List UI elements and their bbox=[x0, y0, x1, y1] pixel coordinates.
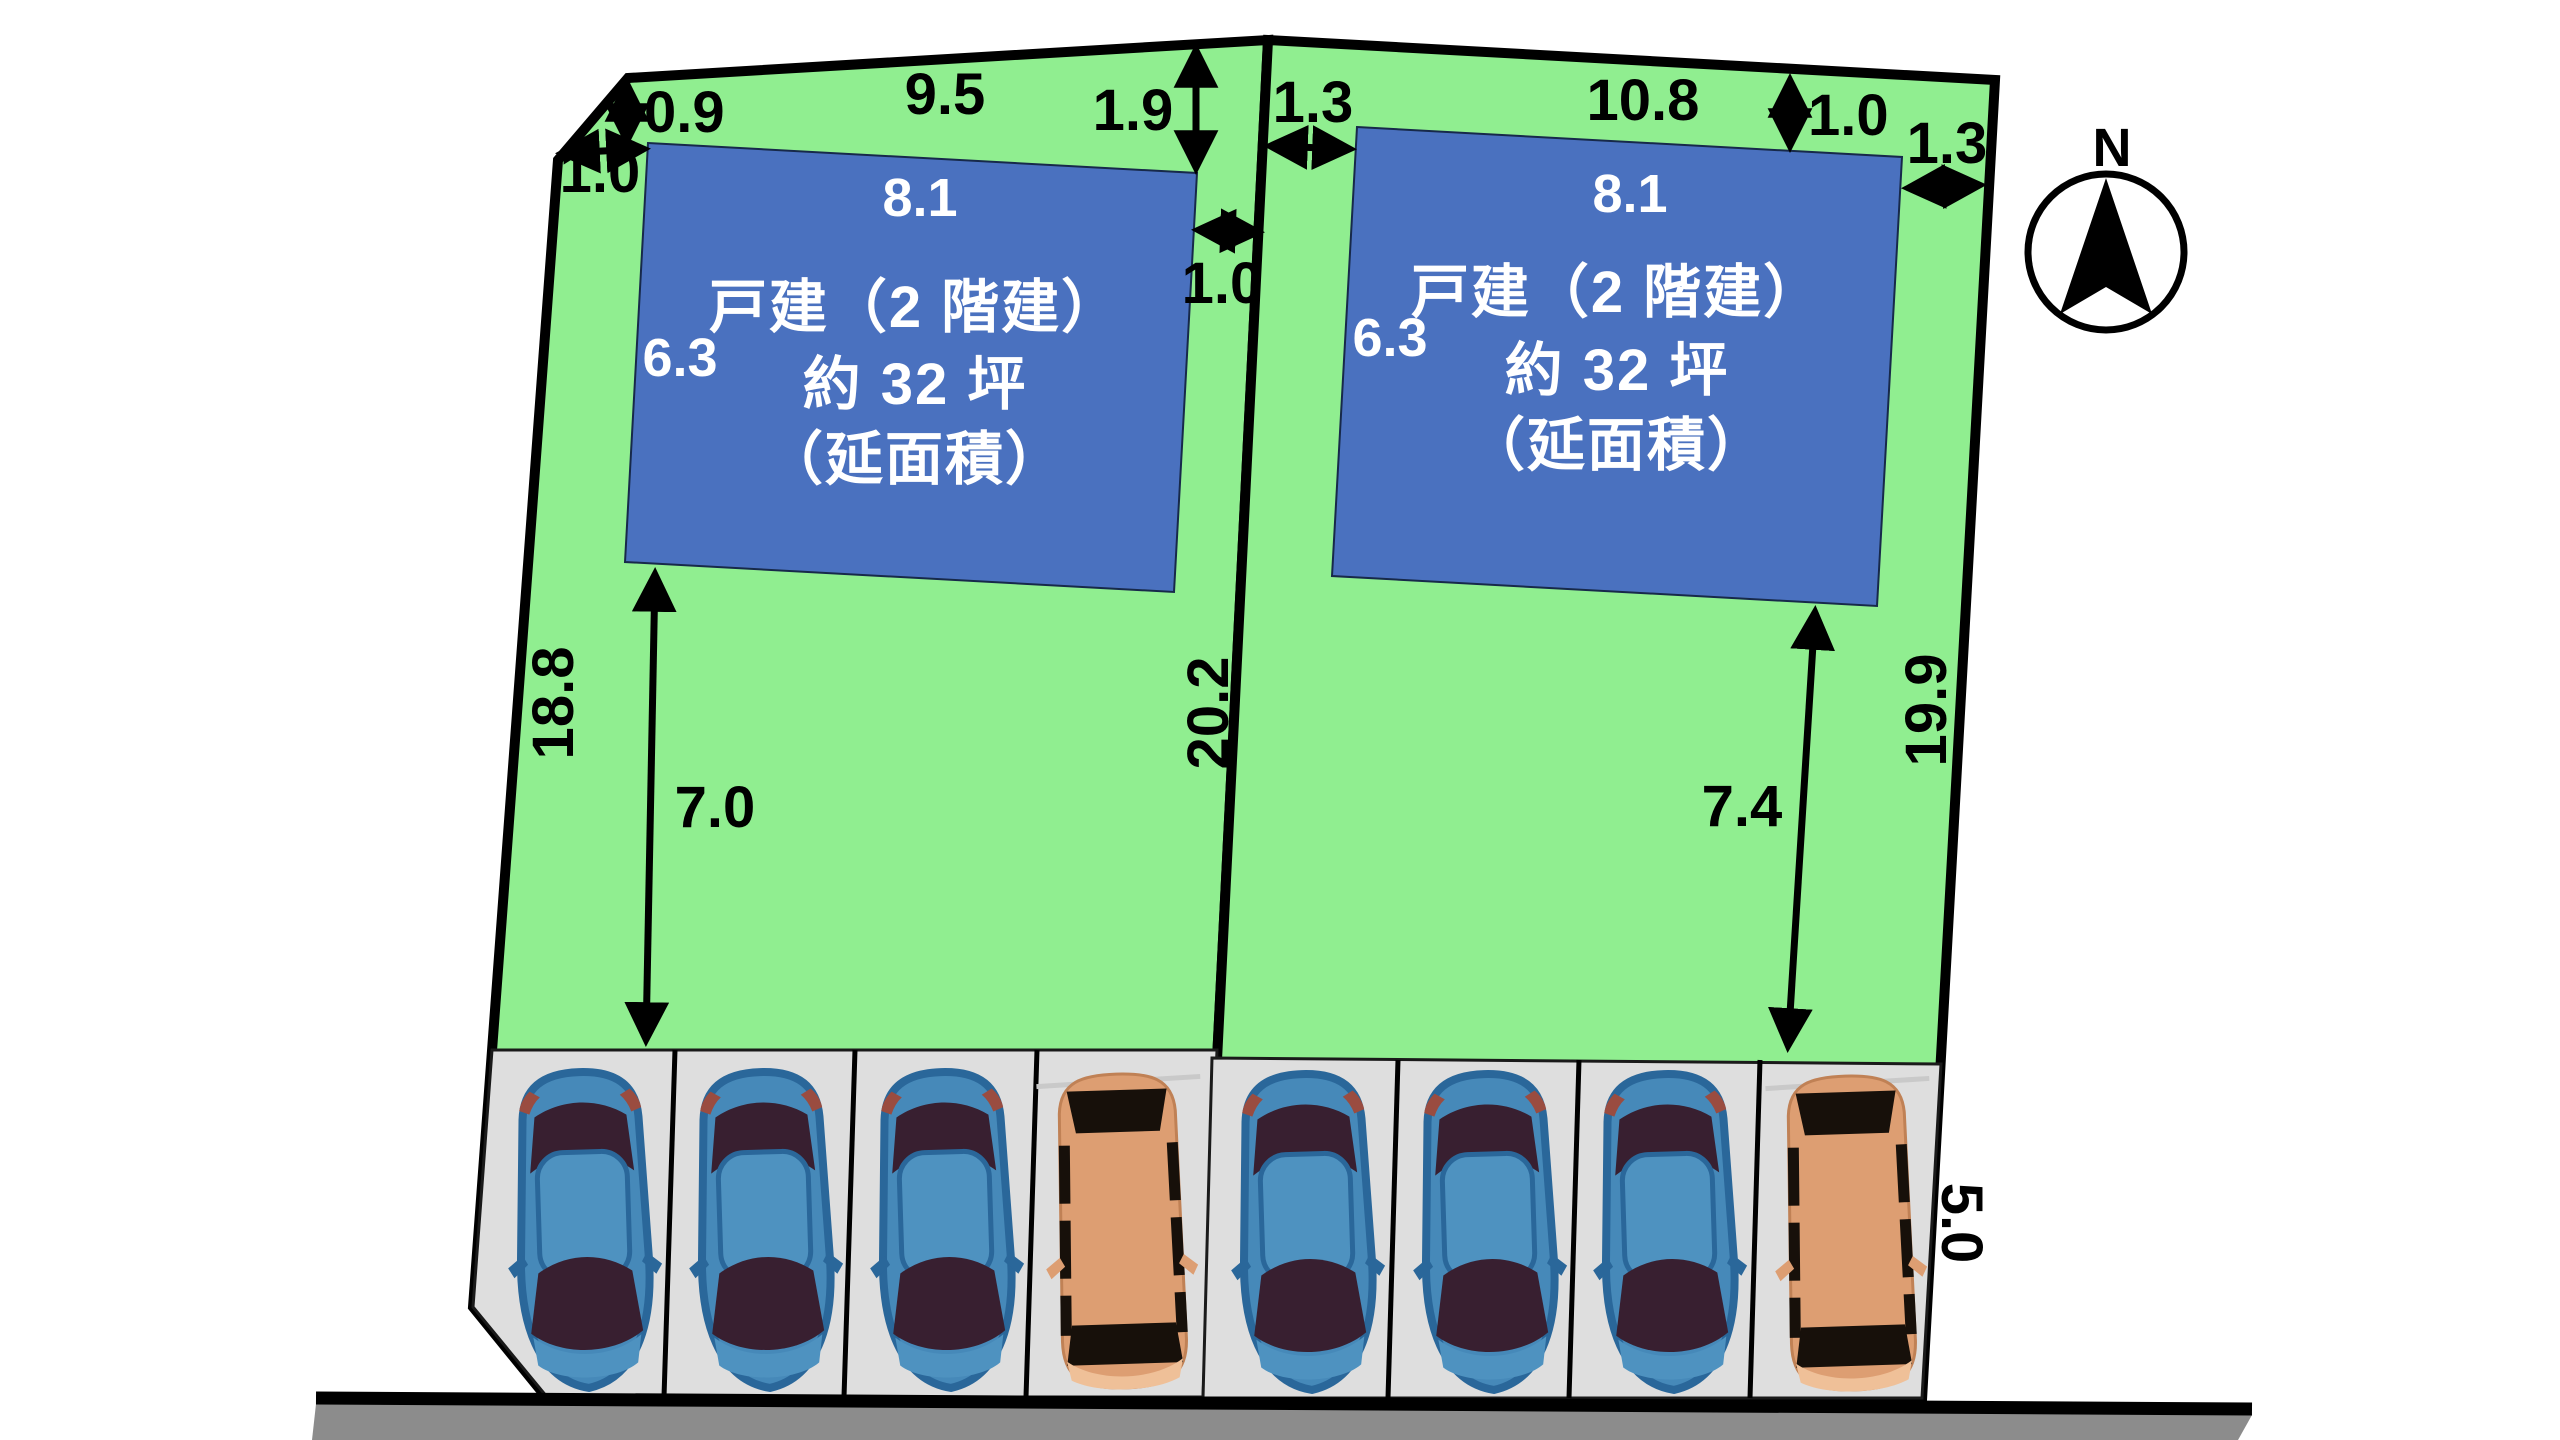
building-left-title: 戸建（2 階建） bbox=[709, 275, 1121, 340]
building-right-depth-label: 6.3 bbox=[1352, 308, 1427, 368]
building-left-depth-label: 6.3 bbox=[642, 328, 717, 388]
dim-label-left-chamfer: 1.0 bbox=[560, 140, 641, 205]
site-plan-diagram: 8.1 戸建（2 階建） 約 32 坪 （延面積） 6.3 8.1 戸建（2 階… bbox=[0, 0, 2560, 1440]
dim-label-left-yard: 7.0 bbox=[675, 775, 756, 840]
dim-label-left-right-edge: 20.2 bbox=[1176, 657, 1241, 770]
dim-label-left-front-setback: 0.9 bbox=[644, 80, 725, 145]
dim-label-right-road-frontage: 5.0 bbox=[1929, 1183, 1994, 1264]
dim-label-right-right-gap: 1.3 bbox=[1907, 111, 1988, 176]
compass-north-label: N bbox=[2093, 118, 2132, 178]
dim-label-left-top-edge: 9.5 bbox=[905, 62, 986, 127]
building-left-area-note: （延面積） bbox=[765, 427, 1065, 492]
compass: N bbox=[2028, 118, 2184, 330]
dim-label-left-side-gap: 1.0 bbox=[1182, 251, 1263, 316]
dim-arrow-right-left-gap bbox=[1270, 146, 1350, 149]
dim-arrow-left-side-gap bbox=[1198, 230, 1258, 232]
dim-label-left-edge: 18.8 bbox=[521, 647, 586, 760]
dim-arrow-right-right-gap bbox=[1908, 185, 1980, 188]
dim-label-right-left-gap: 1.3 bbox=[1273, 70, 1354, 135]
building-right-title: 戸建（2 階建） bbox=[1411, 260, 1823, 325]
dim-label-right-yard: 7.4 bbox=[1702, 774, 1783, 839]
building-right-area: 約 32 坪 bbox=[1505, 338, 1730, 403]
dim-label-right-top-edge: 10.8 bbox=[1587, 68, 1700, 133]
building-right-area-note: （延面積） bbox=[1467, 413, 1767, 478]
building-left-width-label: 8.1 bbox=[882, 168, 957, 228]
building-left-area: 約 32 坪 bbox=[803, 352, 1028, 417]
site-plan-canvas: 8.1 戸建（2 階建） 約 32 坪 （延面積） 6.3 8.1 戸建（2 階… bbox=[0, 0, 2560, 1440]
building-right-width-label: 8.1 bbox=[1592, 164, 1667, 224]
dim-label-left-right-setback: 1.9 bbox=[1093, 78, 1174, 143]
dim-label-right-front-setback: 1.0 bbox=[1808, 83, 1889, 148]
dim-label-right-edge: 19.9 bbox=[1894, 654, 1959, 767]
compass-needle-icon bbox=[2060, 178, 2152, 314]
road bbox=[312, 1398, 2252, 1440]
